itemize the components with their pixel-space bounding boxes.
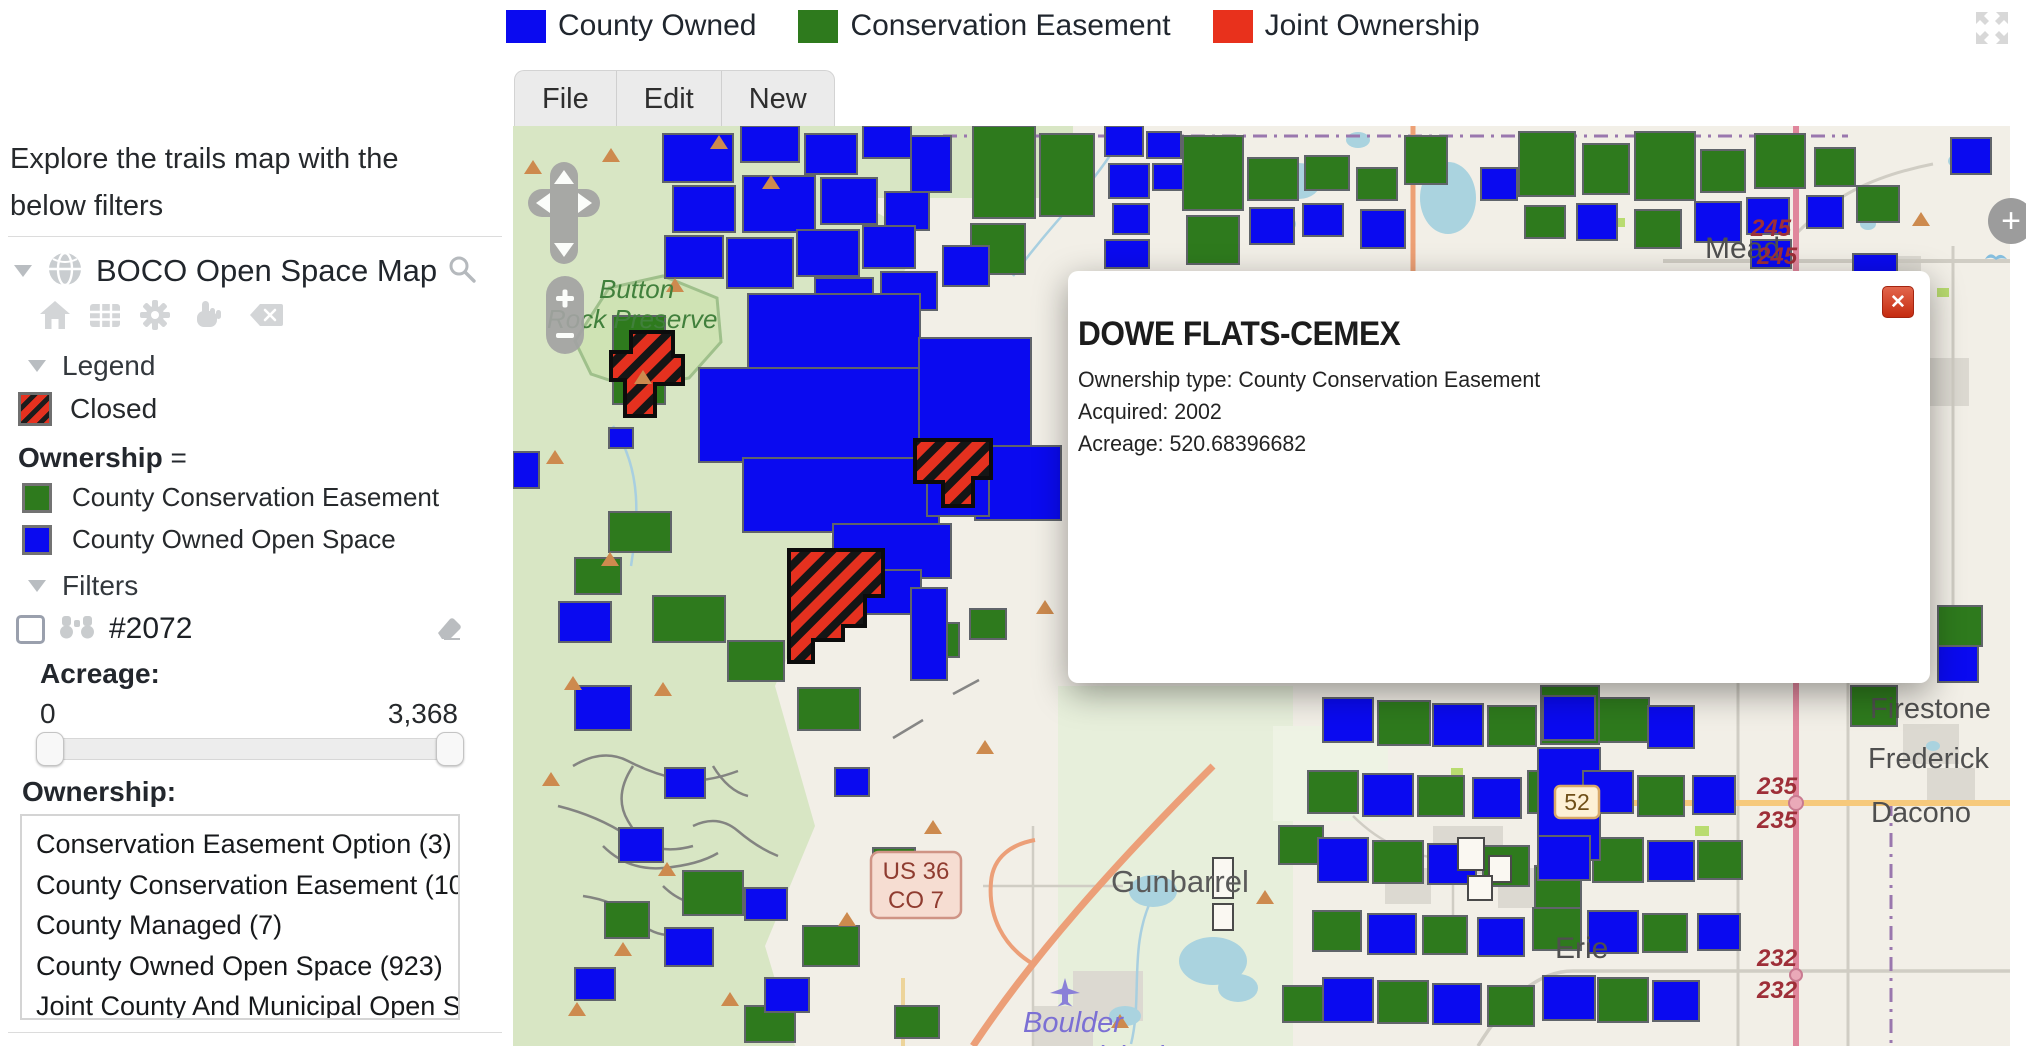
shield-245-top: 245 — [1750, 215, 1792, 242]
town-label-frederick: Frederick — [1868, 743, 1989, 775]
tab-new[interactable]: New — [721, 71, 834, 127]
pan-hand-icon[interactable] — [188, 298, 224, 337]
town-label-dacono: Dacono — [1871, 797, 1971, 829]
filter-checkbox[interactable] — [16, 615, 45, 644]
town-label-erie: Erie — [1555, 932, 1608, 965]
tab-file[interactable]: File — [515, 71, 616, 127]
map-layer-title: BOCO Open Space Map — [96, 253, 437, 289]
filters-collapse-icon[interactable] — [28, 580, 46, 592]
globe-icon — [46, 250, 84, 293]
cce-swatch — [22, 483, 52, 513]
closed-label: Closed — [70, 393, 157, 425]
map-layer-row[interactable]: BOCO Open Space Map — [14, 248, 500, 294]
ownership-eq: = — [170, 442, 186, 473]
conservation-easement-swatch — [798, 10, 838, 43]
shield-235-bottom: 235 — [1756, 807, 1798, 834]
map-edge-add-button[interactable]: + — [1988, 198, 2026, 244]
acreage-max: 3,368 — [388, 698, 458, 730]
popup-field-ownership-type: Ownership type: County Conservation Ease… — [1078, 367, 1540, 393]
town-label-gunbarrel: Gunbarrel — [1111, 864, 1249, 899]
acreage-slider[interactable] — [38, 738, 462, 760]
popup-close-button[interactable]: ✕ — [1882, 286, 1914, 318]
acreage-slider-handle-min[interactable] — [36, 732, 64, 766]
home-icon[interactable] — [38, 299, 72, 336]
collapse-triangle-icon[interactable] — [14, 265, 32, 277]
bird-icon — [1984, 250, 2008, 269]
clear-backspace-icon[interactable] — [248, 302, 284, 333]
acreage-range-labels: 0 3,368 — [40, 698, 458, 730]
cce-label: County Conservation Easement — [72, 482, 439, 513]
shield-us36-label: US 36 — [883, 858, 950, 885]
ownership-option-3[interactable]: County Managed (7) — [22, 905, 458, 946]
legend-joint-ownership: Joint Ownership — [1213, 9, 1480, 43]
binoculars-icon — [59, 612, 95, 647]
legend-section-header[interactable]: Legend — [28, 350, 155, 382]
map-zoom-control[interactable] — [546, 276, 584, 354]
shield-235-top: 235 — [1756, 773, 1798, 800]
fullscreen-icon[interactable] — [1972, 8, 2012, 53]
eraser-icon[interactable] — [434, 613, 464, 646]
popup-field-acquired: Acquired: 2002 — [1078, 399, 1222, 425]
acreage-label: Acreage: — [40, 658, 160, 690]
filter-tag-label: #2072 — [109, 612, 192, 646]
acreage-slider-handle-max[interactable] — [436, 732, 464, 766]
airport-label-line2: Municipal — [1041, 1041, 1165, 1046]
acreage-min: 0 — [40, 698, 56, 730]
intro-line-2: below filters — [10, 183, 490, 230]
sidebar-divider-bottom — [8, 1032, 502, 1033]
ownership-option-1[interactable]: Conservation Easement Option (3) — [22, 824, 458, 865]
tab-edit[interactable]: Edit — [616, 71, 721, 127]
shield-co7-label: CO 7 — [888, 887, 944, 914]
ownership-option-2[interactable]: County Conservation Easement (103 — [22, 865, 458, 906]
coos-swatch — [22, 525, 52, 555]
search-icon[interactable] — [447, 254, 477, 289]
filters-section-header[interactable]: Filters — [28, 570, 138, 602]
ownership-list-label: Ownership: — [22, 776, 176, 808]
legend-closed-row: Closed — [18, 392, 157, 426]
legend-entry-coos: County Owned Open Space — [22, 524, 396, 555]
layer-toolbar — [38, 298, 284, 337]
legend-collapse-icon[interactable] — [28, 360, 46, 372]
filters-header-label: Filters — [62, 570, 138, 602]
closed-swatch — [18, 392, 52, 426]
county-owned-label: County Owned — [558, 9, 756, 43]
airport-label-line1: Boulder — [1023, 1007, 1124, 1039]
popup-field-acreage: Acreage: 520.68396682 — [1078, 431, 1306, 457]
app-window: County Owned Conservation Easement Joint… — [0, 0, 2026, 1046]
shield-232-bottom: 232 — [1756, 977, 1798, 1004]
shield-52-badge: 52 — [1555, 786, 1599, 818]
sidebar-divider-top — [8, 236, 502, 237]
ownership-option-5[interactable]: Joint County And Municipal Open Sp — [22, 986, 458, 1020]
filter-2072-row: #2072 — [16, 608, 486, 650]
preserve-label-line1: Button — [599, 274, 674, 304]
legend-entry-cce: County Conservation Easement — [22, 482, 439, 513]
intro-line-1: Explore the trails map with the — [10, 136, 490, 183]
legend-conservation-easement: Conservation Easement — [798, 9, 1170, 43]
legend-county-owned: County Owned — [506, 9, 756, 43]
legend-header-label: Legend — [62, 350, 155, 382]
gear-icon[interactable] — [138, 298, 172, 337]
popup-title: DOWE FLATS-CEMEX — [1078, 315, 1400, 354]
conservation-easement-label: Conservation Easement — [850, 9, 1170, 43]
zoom-out-icon[interactable] — [556, 333, 574, 338]
ownership-header: Ownership — [18, 442, 163, 473]
shield-52-label: 52 — [1564, 789, 1590, 815]
ownership-eq-row: Ownership = — [18, 442, 187, 474]
table-icon[interactable] — [88, 300, 122, 335]
ownership-listbox[interactable]: Conservation Easement Option (3) County … — [20, 814, 460, 1020]
feature-popup: ✕ DOWE FLATS-CEMEX Ownership type: Count… — [1068, 271, 1930, 683]
joint-ownership-label: Joint Ownership — [1265, 9, 1480, 43]
sidebar-intro: Explore the trails map with the below fi… — [10, 136, 490, 230]
joint-ownership-swatch — [1213, 10, 1253, 43]
shield-232-top: 232 — [1756, 945, 1798, 972]
town-label-firestone: Firestone — [1870, 693, 1991, 725]
ownership-option-4[interactable]: County Owned Open Space (923) — [22, 946, 458, 987]
shield-us36-badge: US 36 CO 7 — [871, 852, 961, 918]
top-legend-bar: County Owned Conservation Easement Joint… — [506, 9, 1480, 43]
menu-tabbar: File Edit New — [514, 70, 835, 127]
sidebar: Explore the trails map with the below fi… — [0, 0, 513, 1046]
coos-label: County Owned Open Space — [72, 524, 396, 555]
shield-245-bottom: 245 — [1756, 243, 1798, 270]
